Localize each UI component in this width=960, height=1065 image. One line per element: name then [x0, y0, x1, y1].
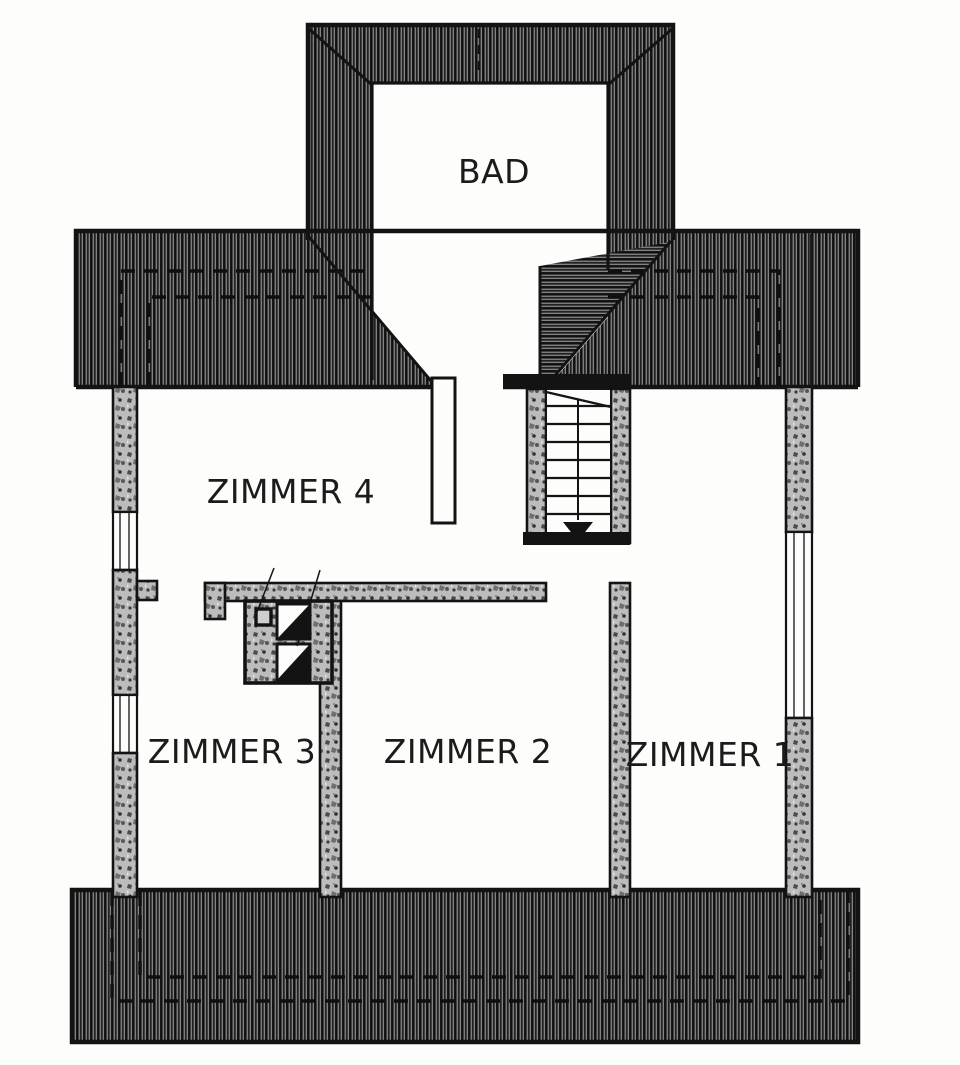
floor-plan-drawing: BAD ZIMMER 4 ZIMMER 3 ZIMMER 2 ZIMMER 1 [0, 0, 960, 1065]
interior-wall-horizontal [205, 583, 546, 601]
stair-wall-left [527, 389, 546, 543]
passage-to-bad [437, 83, 503, 392]
wall-segment [113, 753, 137, 897]
staircase [523, 389, 630, 545]
room-label-bad: BAD [458, 152, 530, 191]
wall-segment [113, 387, 137, 512]
room-label-zimmer2: ZIMMER 2 [384, 732, 553, 771]
stair-wall-right [611, 389, 630, 543]
partition-wall-thin [432, 378, 455, 523]
room-label-zimmer3: ZIMMER 3 [148, 732, 317, 771]
exterior-wall-right [786, 387, 812, 897]
wall-segment [786, 387, 812, 532]
window-left-upper [113, 512, 137, 570]
interior-wall-end-stub [205, 583, 225, 619]
window-left-lower [113, 695, 137, 753]
stair-head-wall-stub [503, 374, 630, 388]
window-right [786, 532, 812, 718]
room-label-zimmer1: ZIMMER 1 [626, 735, 795, 774]
chimney-vent-small [256, 609, 271, 625]
wall-segment [113, 570, 137, 695]
wall-nib [137, 581, 157, 600]
room-label-zimmer4: ZIMMER 4 [207, 472, 376, 511]
floor-plan-page: BAD ZIMMER 4 ZIMMER 3 ZIMMER 2 ZIMMER 1 [0, 0, 960, 1065]
roof-band-bottom [72, 890, 858, 1042]
